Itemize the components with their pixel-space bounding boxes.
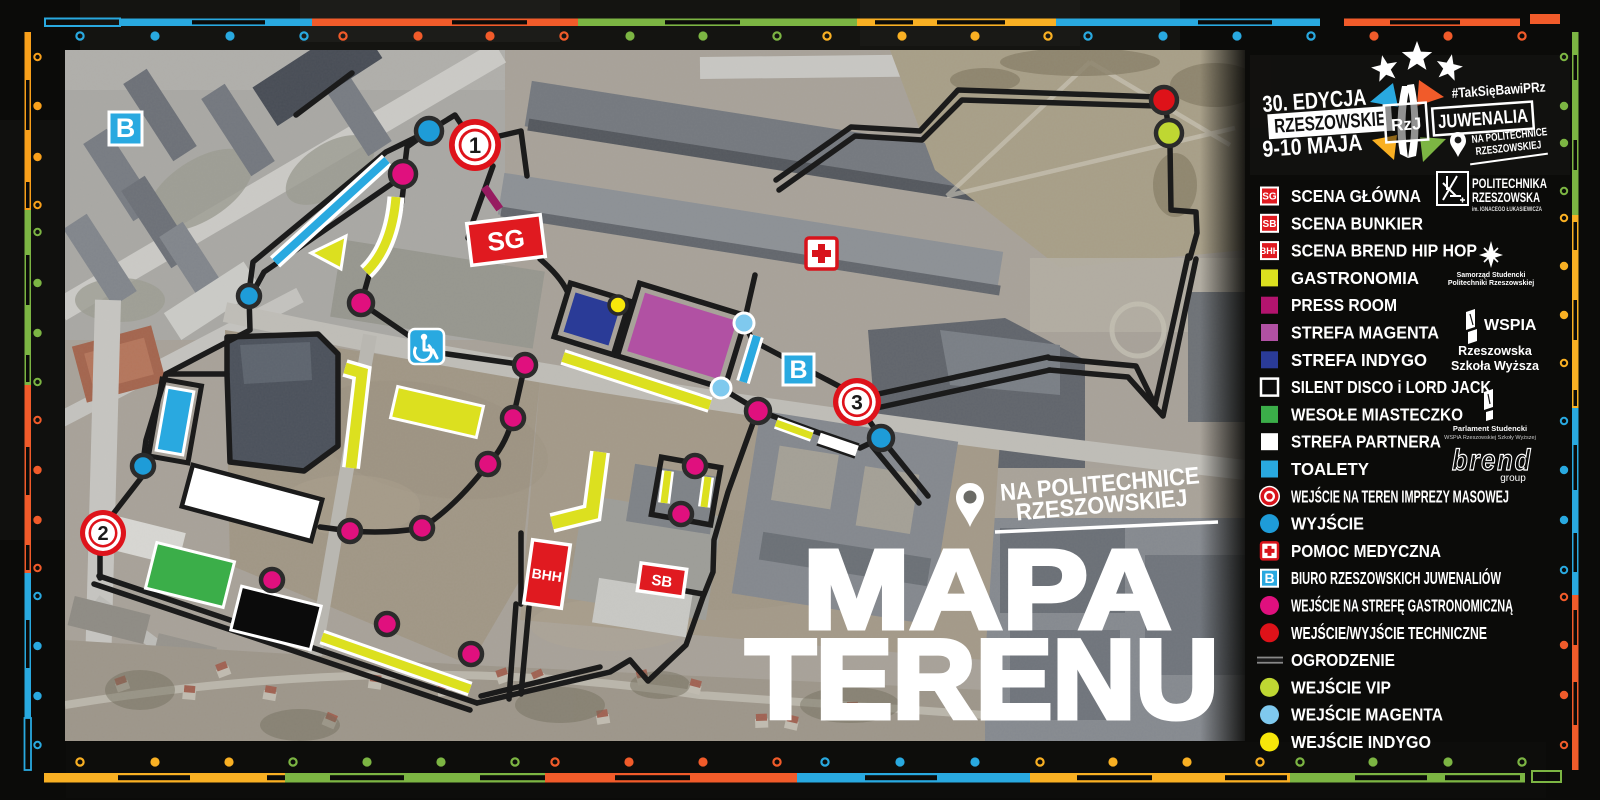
svg-text:TOALETY: TOALETY	[1291, 459, 1369, 479]
svg-text:WESOŁE MIASTECZKO: WESOŁE MIASTECZKO	[1291, 404, 1463, 424]
svg-text:STREFA PARTNERA: STREFA PARTNERA	[1291, 432, 1441, 452]
svg-text:WEJŚCIE VIP: WEJŚCIE VIP	[1291, 676, 1391, 697]
svg-text:Szkoła Wyższa: Szkoła Wyższa	[1451, 359, 1540, 373]
svg-text:WEJŚCIE MAGENTA: WEJŚCIE MAGENTA	[1291, 704, 1443, 725]
svg-text:SB: SB	[650, 572, 673, 592]
svg-text:STREFA MAGENTA: STREFA MAGENTA	[1291, 323, 1439, 343]
svg-text:SCENA GŁÓWNA: SCENA GŁÓWNA	[1291, 185, 1421, 206]
svg-text:GASTRONOMIA: GASTRONOMIA	[1291, 268, 1419, 288]
svg-text:TERENU: TERENU	[746, 617, 1219, 742]
svg-text:1: 1	[469, 133, 481, 158]
svg-text:B: B	[1264, 570, 1274, 586]
svg-text:PRESS ROOM: PRESS ROOM	[1291, 295, 1397, 315]
svg-text:SILENT DISCO i LORD JACK: SILENT DISCO i LORD JACK	[1291, 377, 1491, 397]
svg-text:Parlament Studencki: Parlament Studencki	[1453, 424, 1527, 433]
svg-text:SCENA BUNKIER: SCENA BUNKIER	[1291, 213, 1423, 233]
svg-text:Rzeszowska: Rzeszowska	[1458, 344, 1533, 358]
svg-text:Politechniki Rzeszowskiej: Politechniki Rzeszowskiej	[1448, 280, 1534, 287]
svg-text:im. IGNACEGO ŁUKASIEWICZA: im. IGNACEGO ŁUKASIEWICZA	[1472, 206, 1542, 213]
svg-text:WSPIA: WSPIA	[1484, 317, 1537, 334]
svg-text:B: B	[116, 113, 136, 143]
svg-text:POMOC MEDYCZNA: POMOC MEDYCZNA	[1291, 541, 1441, 561]
svg-text:WSPiA Rzeszowskiej Szkoły Wyżs: WSPiA Rzeszowskiej Szkoły Wyższej	[1444, 435, 1536, 441]
svg-text:SCENA BREND HIP HOP: SCENA BREND HIP HOP	[1291, 241, 1477, 261]
svg-text:RZESZOWSKA: RZESZOWSKA	[1472, 189, 1540, 205]
svg-text:3: 3	[851, 392, 863, 415]
svg-text:WYJŚCIE: WYJŚCIE	[1291, 513, 1364, 534]
svg-text:WEJŚCIE/WYJŚCIE TECHNICZNE: WEJŚCIE/WYJŚCIE TECHNICZNE	[1291, 622, 1487, 643]
svg-text:BIURO RZESZOWSKICH JUWENALIÓW: BIURO RZESZOWSKICH JUWENALIÓW	[1291, 567, 1501, 588]
svg-text:B: B	[789, 356, 807, 384]
svg-text:SG: SG	[1262, 192, 1277, 203]
svg-text:RzJ: RzJ	[1390, 114, 1421, 135]
svg-text:WEJŚCIE NA STREFĘ GASTRONOMICZ: WEJŚCIE NA STREFĘ GASTRONOMICZNĄ	[1291, 595, 1513, 616]
svg-text:group: group	[1500, 473, 1526, 484]
svg-text:STREFA INDYGO: STREFA INDYGO	[1291, 350, 1427, 370]
svg-text:Samorząd Studencki: Samorząd Studencki	[1457, 272, 1526, 279]
svg-text:WEJŚCIE INDYGO: WEJŚCIE INDYGO	[1291, 731, 1431, 752]
svg-text:BHH: BHH	[1260, 246, 1280, 256]
svg-text:2: 2	[97, 523, 108, 545]
svg-text:SB: SB	[1263, 219, 1277, 230]
svg-text:SG: SG	[486, 223, 527, 257]
svg-text:OGRODZENIE: OGRODZENIE	[1291, 650, 1395, 670]
svg-text:WEJŚCIE NA TEREN IMPREZY MASOW: WEJŚCIE NA TEREN IMPREZY MASOWEJ	[1291, 485, 1509, 506]
